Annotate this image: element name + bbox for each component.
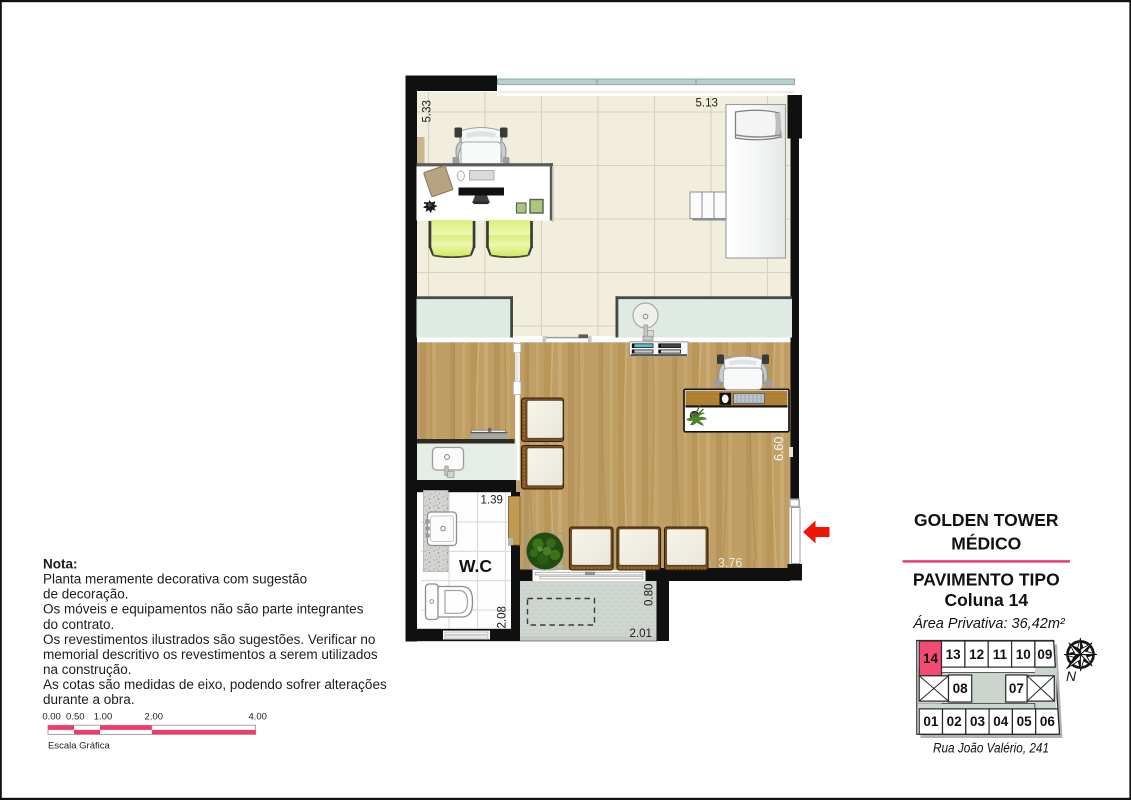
svg-text:2.08: 2.08 — [497, 606, 509, 628]
svg-text:W.C: W.C — [459, 556, 492, 576]
svg-text:11: 11 — [993, 647, 1008, 662]
svg-text:na construção.: na construção. — [43, 662, 132, 677]
svg-text:2.00: 2.00 — [145, 712, 164, 723]
svg-text:Os revestimentos ilustrados sã: Os revestimentos ilustrados são sugestõe… — [43, 632, 375, 647]
svg-text:1.00: 1.00 — [94, 712, 113, 723]
svg-text:02: 02 — [947, 714, 962, 729]
svg-text:1.39: 1.39 — [481, 495, 503, 507]
svg-text:do contrato.: do contrato. — [43, 617, 114, 632]
svg-text:de decoração.: de decoração. — [43, 587, 129, 602]
svg-text:Nota:: Nota: — [43, 557, 78, 572]
svg-text:07: 07 — [1009, 681, 1024, 696]
svg-text:MÉDICO: MÉDICO — [951, 533, 1021, 554]
svg-text:Planta meramente decorativa co: Planta meramente decorativa com sugestão — [43, 572, 307, 587]
svg-text:12: 12 — [969, 647, 984, 662]
svg-text:5.33: 5.33 — [422, 100, 434, 122]
svg-text:10: 10 — [1016, 647, 1031, 662]
svg-text:03: 03 — [970, 714, 986, 729]
svg-text:Coluna 14: Coluna 14 — [944, 590, 1028, 610]
svg-text:durante a obra.: durante a obra. — [43, 692, 135, 707]
svg-text:05: 05 — [1017, 714, 1033, 729]
svg-text:4.00: 4.00 — [248, 712, 267, 723]
svg-text:Os móveis e equipamentos não s: Os móveis e equipamentos não são parte i… — [43, 602, 364, 617]
svg-text:GOLDEN TOWER: GOLDEN TOWER — [914, 510, 1059, 530]
svg-text:memorial descritivo os revesti: memorial descritivo os revestimentos a s… — [43, 647, 378, 662]
svg-text:0.00: 0.00 — [42, 712, 61, 723]
svg-text:2.01: 2.01 — [630, 628, 652, 640]
svg-text:08: 08 — [953, 681, 969, 696]
svg-text:0.50: 0.50 — [66, 712, 85, 723]
svg-text:6.60: 6.60 — [772, 437, 786, 461]
svg-text:As cotas são medidas de eixo,: As cotas são medidas de eixo, podendo so… — [43, 677, 387, 692]
svg-text:Rua João Valério, 241: Rua João Valério, 241 — [933, 741, 1049, 756]
svg-text:N: N — [1066, 668, 1077, 684]
svg-text:PAVIMENTO TIPO: PAVIMENTO TIPO — [913, 570, 1060, 590]
svg-text:0.80: 0.80 — [644, 584, 656, 606]
svg-text:3.76: 3.76 — [718, 556, 742, 570]
svg-text:Área Privativa: 36,42m²: Área Privativa: 36,42m² — [912, 615, 1066, 632]
svg-text:14: 14 — [923, 651, 939, 666]
svg-text:Escala Gráfica: Escala Gráfica — [48, 741, 110, 752]
svg-text:01: 01 — [923, 714, 939, 729]
svg-text:13: 13 — [946, 647, 962, 662]
svg-text:04: 04 — [993, 714, 1009, 729]
svg-text:06: 06 — [1040, 714, 1056, 729]
svg-text:09: 09 — [1037, 647, 1052, 662]
svg-text:5.13: 5.13 — [696, 98, 718, 110]
